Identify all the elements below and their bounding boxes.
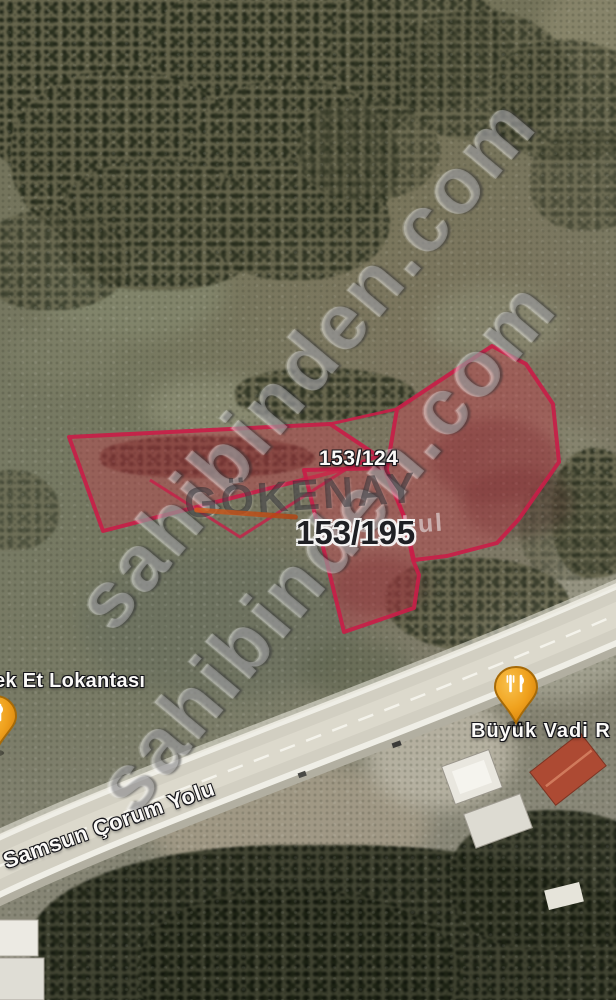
building-roof xyxy=(544,882,584,910)
parcel-label-153-195: 153/195 xyxy=(296,514,415,552)
poi-label-buyuk-vadi: Büyük Vadi R xyxy=(471,720,611,743)
building-roof xyxy=(464,794,533,848)
poi-label-lokantasi: ek Et Lokantası xyxy=(0,670,145,693)
building-roof xyxy=(0,958,44,1000)
parcel-label-153-124: 153/124 xyxy=(319,447,398,471)
building-roof xyxy=(0,920,38,956)
restaurant-pin-icon[interactable] xyxy=(494,665,538,729)
map-pin-icon[interactable] xyxy=(0,694,17,758)
satellite-map: sahibinden.com sahibinden.com GÖKENAY ku… xyxy=(0,0,616,1000)
